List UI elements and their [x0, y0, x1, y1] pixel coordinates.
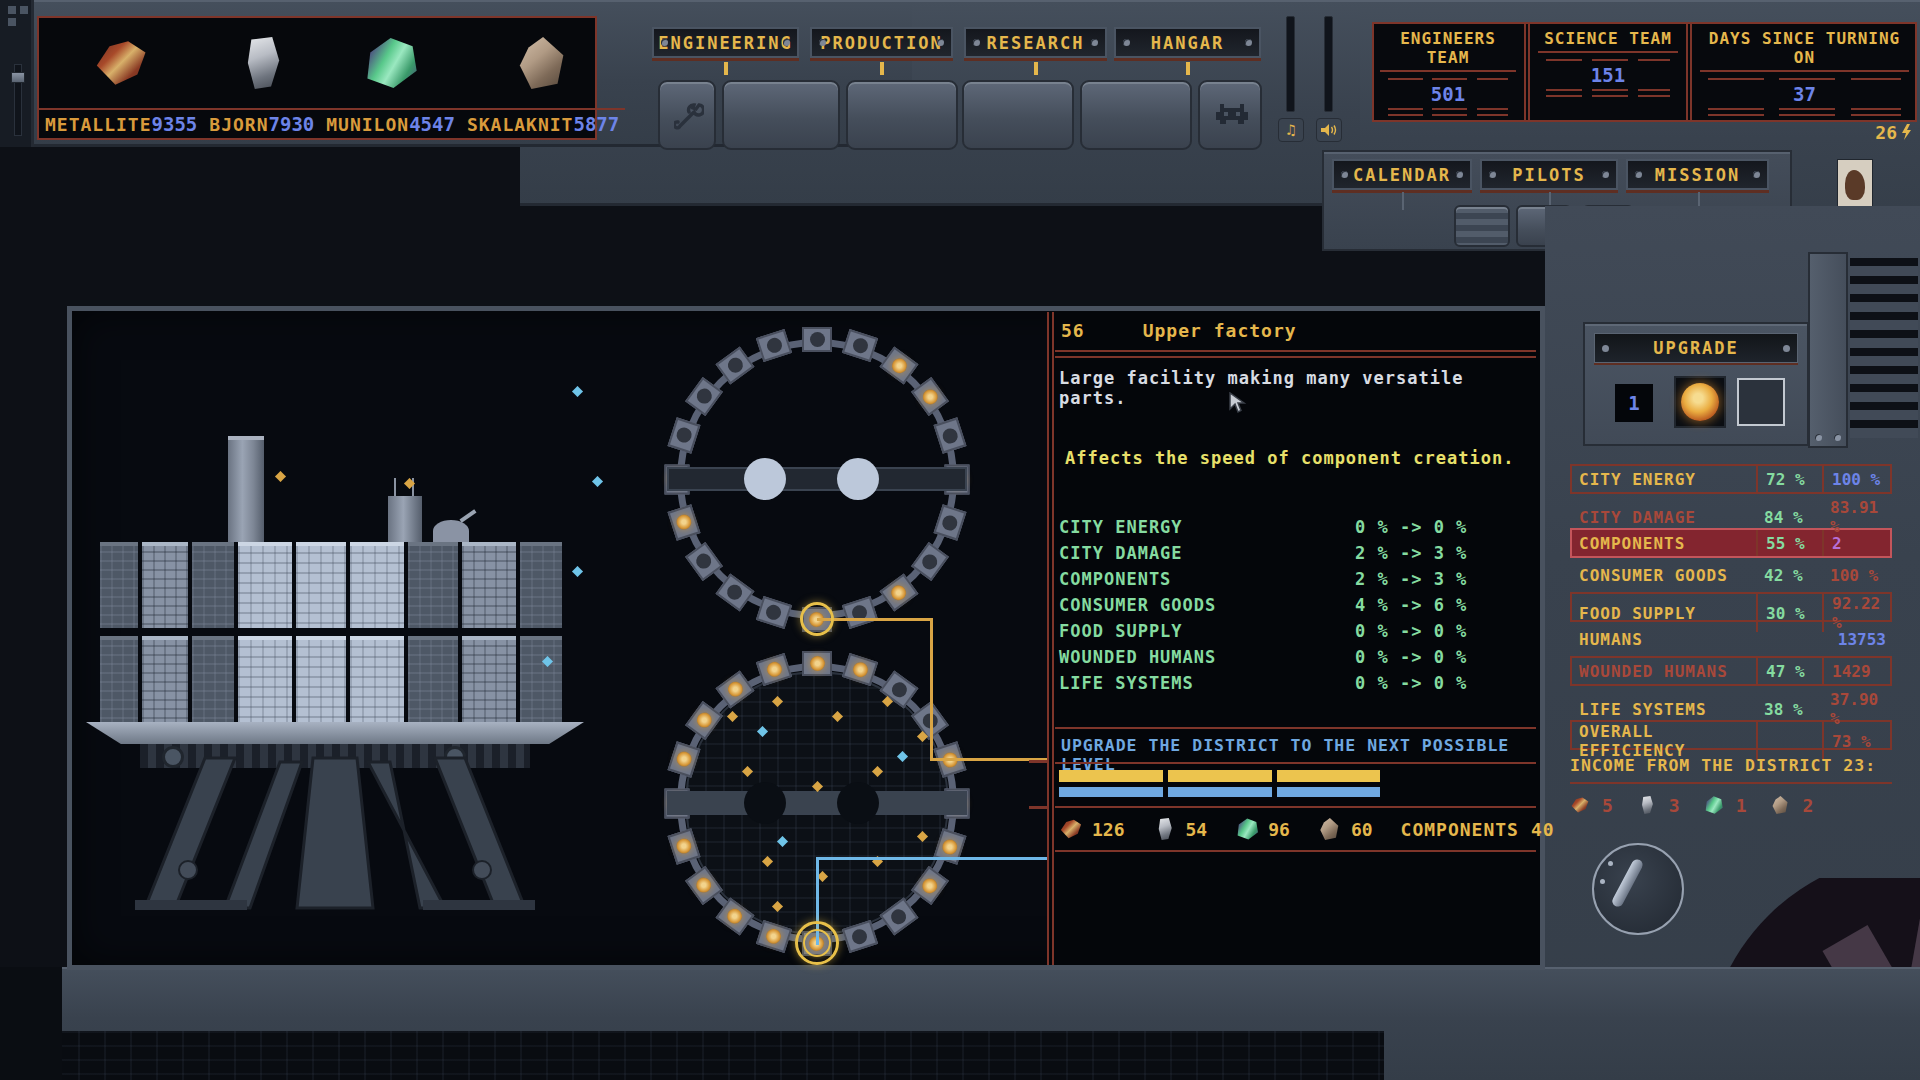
tab-engineering[interactable]: ENGINEERING	[652, 27, 799, 58]
game-screen: METALLITE9355BJORN7930MUNILON4547SKALAKN…	[0, 0, 1920, 1080]
building-block	[408, 542, 458, 628]
building-block	[520, 636, 562, 722]
decor-block	[8, 18, 16, 26]
wrench-icon	[674, 100, 704, 130]
menu-tab-label: CALENDAR	[1353, 165, 1451, 185]
components-cost: COMPONENTS40	[1401, 819, 1577, 840]
science-team-value: 151	[1532, 63, 1684, 87]
stat-change: 0 % -> 0 %	[1355, 621, 1467, 641]
building-row	[100, 542, 570, 628]
stat-change: 0 % -> 0 %	[1355, 647, 1467, 667]
district-header: 56 Upper factory	[1061, 320, 1297, 341]
tab-label: PRODUCTION	[820, 33, 942, 53]
antenna	[394, 478, 396, 496]
stat-change: 0 % -> 0 %	[1355, 517, 1467, 537]
row-value: 92.22 %	[1822, 594, 1890, 632]
resource-cell: SKALAKNIT5877	[461, 18, 625, 138]
metallite-ore-icon	[1570, 796, 1590, 814]
axle-hub	[744, 782, 786, 824]
district-stat-row: COMPONENTS2 % -> 3 %	[1059, 569, 1519, 595]
stat-label: FOOD SUPPLY	[1059, 621, 1183, 641]
divider	[1055, 806, 1536, 808]
level-bar-slot	[1385, 770, 1489, 800]
invader-button[interactable]	[1198, 80, 1262, 150]
district-effect: Affects the speed of component creation.	[1065, 448, 1514, 468]
mouse-cursor	[1228, 392, 1248, 414]
district-id: 56	[1061, 320, 1085, 341]
building-block	[192, 542, 234, 628]
upgrade-core-button[interactable]	[1674, 376, 1726, 428]
wrench-button[interactable]	[658, 80, 716, 150]
row-value: 100 %	[1822, 466, 1890, 492]
munilon-crystal-icon	[1235, 818, 1259, 840]
music-volume-slider[interactable]	[1286, 16, 1295, 112]
connector-line-yellow	[817, 618, 933, 621]
decor-dashes	[1546, 95, 1670, 97]
platform-deck	[86, 722, 584, 744]
row-label: WOUNDED HUMANS	[1572, 662, 1756, 681]
vent-slats	[1850, 258, 1918, 438]
science-team-label: SCIENCE TEAM	[1532, 29, 1684, 48]
district-description: Large facility making many versatile par…	[1059, 368, 1540, 408]
menu-tab-label: PILOTS	[1512, 165, 1585, 185]
row-percent: 55 %	[1756, 530, 1822, 556]
decor-dashes	[1708, 78, 1901, 80]
district-stat-row: CITY DAMAGE2 % -> 3 %	[1059, 543, 1519, 569]
resource-name: METALLITE	[45, 114, 152, 135]
platform-legs	[130, 752, 540, 912]
cost-value: 126	[1092, 819, 1125, 840]
sparkle	[592, 476, 603, 487]
menu-key-1[interactable]	[1454, 205, 1510, 247]
building-block	[238, 636, 292, 722]
table-row[interactable]: FOOD SUPPLY30 %92.22 %	[1570, 592, 1892, 622]
building-block	[462, 542, 516, 628]
resources-panel: METALLITE9355BJORN7930MUNILON4547SKALAKN…	[37, 16, 597, 140]
metallite-ore-icon	[92, 37, 150, 89]
building-block	[100, 636, 138, 722]
building-block	[192, 636, 234, 722]
upgrade-prompt: UPGRADE THE DISTRICT TO THE NEXT POSSIBL…	[1061, 736, 1540, 774]
decor-dashes	[1388, 108, 1508, 110]
stat-change: 2 % -> 3 %	[1355, 569, 1467, 589]
city-platform-art	[100, 430, 570, 910]
decor-dashes	[1388, 78, 1508, 80]
income-title: INCOME FROM THE DISTRICT 23:	[1570, 756, 1900, 775]
tab-indicator	[724, 62, 728, 75]
tab-indicator	[880, 62, 884, 75]
resource-value: 9355	[152, 113, 198, 135]
screw	[783, 39, 790, 46]
divider	[1684, 24, 1694, 120]
menu-tab-label: MISSION	[1655, 165, 1741, 185]
level-bar-slot	[1168, 770, 1272, 800]
decor-block	[8, 6, 16, 14]
decor-block	[20, 6, 28, 14]
divider	[1055, 727, 1536, 729]
income-item: 5	[1570, 795, 1613, 816]
building-block	[462, 636, 516, 722]
screw	[1091, 39, 1098, 46]
stat-label: LIFE SYSTEMS	[1059, 673, 1194, 693]
screw	[1123, 39, 1130, 46]
upgrade-level-bars	[1059, 770, 1489, 800]
building-block	[142, 636, 188, 722]
district-title: Upper factory	[1143, 320, 1297, 341]
sparkle	[572, 566, 583, 577]
table-row[interactable]: OVERALL EFFICIENCY73 %	[1570, 720, 1892, 750]
cost-value: 96	[1268, 819, 1290, 840]
income-value: 1	[1736, 795, 1747, 816]
screw	[1245, 39, 1252, 46]
music-note-icon: ♫	[1278, 118, 1304, 142]
district-stat-row: CONSUMER GOODS4 % -> 6 %	[1059, 595, 1519, 621]
power-readout: 26	[1800, 121, 1912, 143]
stat-label: CITY DAMAGE	[1059, 543, 1183, 563]
building-block	[350, 542, 404, 628]
divider	[1055, 350, 1536, 358]
axle-hub	[837, 458, 879, 500]
district-node[interactable]	[802, 651, 832, 676]
stat-label: COMPONENTS	[1059, 569, 1171, 589]
screw	[1341, 171, 1348, 178]
resource-value: 4547	[409, 113, 455, 135]
level-bar-slot	[1059, 770, 1163, 800]
invader-icon	[1216, 104, 1248, 128]
row-label: HUMANS	[1572, 630, 1756, 649]
table-row[interactable]: WOUNDED HUMANS47 %1429	[1570, 656, 1892, 686]
building-block	[350, 636, 404, 722]
tab-indicator	[1186, 62, 1190, 75]
city-viewport[interactable]: 56 Upper factory Large facility making m…	[67, 306, 1545, 970]
screw	[1783, 345, 1790, 352]
stat-label: CONSUMER GOODS	[1059, 595, 1216, 615]
divider	[1570, 782, 1892, 784]
screw	[1608, 861, 1613, 866]
team-stats-panel: ENGINEERS TEAM 501 SCIENCE TEAM 151 DAYS…	[1372, 22, 1917, 122]
skalaknit-crystal-icon	[514, 37, 572, 89]
antenna	[412, 478, 414, 496]
decor-dashes	[1708, 108, 1901, 110]
screw	[661, 39, 668, 46]
speaker-icon	[1316, 118, 1342, 142]
bjorn-crystal-icon	[1153, 818, 1177, 840]
cost-item: 60	[1318, 818, 1373, 840]
resource-cell: METALLITE9355	[39, 18, 203, 138]
resource-value: 5877	[573, 113, 619, 135]
screw	[1456, 171, 1463, 178]
row-percent: 47 %	[1756, 658, 1822, 684]
menu-tab-calendar[interactable]: CALENDAR	[1332, 159, 1472, 190]
row-label: FOOD SUPPLY	[1572, 604, 1756, 623]
resource-name: BJORN	[209, 114, 268, 135]
engineers-team-block: ENGINEERS TEAM 501	[1374, 24, 1522, 120]
screw	[1602, 345, 1609, 352]
row-percent: 42 %	[1756, 566, 1822, 585]
building-block	[520, 542, 562, 628]
toolbar-key-4[interactable]	[1080, 80, 1192, 150]
divider	[1380, 70, 1516, 72]
screw	[937, 39, 944, 46]
left-slider-handle[interactable]	[11, 72, 25, 83]
row-label: CONSUMER GOODS	[1572, 566, 1756, 585]
row-percent: 30 %	[1756, 594, 1822, 632]
tab-production[interactable]: PRODUCTION	[810, 27, 953, 58]
screw	[1600, 879, 1605, 884]
days-counter-value: 37	[1694, 82, 1915, 106]
row-percent: 38 %	[1756, 700, 1822, 719]
stat-change: 0 % -> 0 %	[1355, 673, 1467, 693]
resource-value: 7930	[269, 113, 315, 135]
tab-hangar[interactable]: HANGAR	[1114, 27, 1261, 58]
science-team-block: SCIENCE TEAM 151	[1532, 24, 1684, 120]
resource-name: SKALAKNIT	[467, 114, 574, 135]
metallite-ore-icon	[1059, 818, 1083, 840]
sound-volume-slider[interactable]	[1324, 16, 1333, 112]
panel-tick	[1029, 806, 1047, 809]
row-percent: 84 %	[1756, 508, 1822, 527]
building-block	[296, 636, 346, 722]
tab-research[interactable]: RESEARCH	[964, 27, 1107, 58]
income-value: 5	[1602, 795, 1613, 816]
bjorn-crystal-icon	[233, 37, 291, 89]
level-bar-slot	[1277, 770, 1381, 800]
menu-tab-pilots[interactable]: PILOTS	[1480, 159, 1618, 190]
row-value: 13753	[1756, 630, 1890, 649]
decor-dashes	[1546, 89, 1670, 91]
poster-figure	[1838, 160, 1872, 212]
divider	[1538, 51, 1678, 53]
income-value: 3	[1669, 795, 1680, 816]
building-block	[408, 636, 458, 722]
resource-cell: MUNILON4547	[320, 18, 461, 138]
building-block	[238, 542, 292, 628]
row-label: OVERALL EFFICIENCY	[1572, 722, 1756, 760]
row-value: 1429	[1822, 658, 1890, 684]
divider	[1055, 850, 1536, 852]
stat-change: 4 % -> 6 %	[1355, 595, 1467, 615]
tab-label: HANGAR	[1151, 33, 1224, 53]
divider	[1522, 24, 1532, 120]
connector-line-yellow	[930, 618, 933, 761]
screw	[1602, 171, 1609, 178]
cost-value: 54	[1186, 819, 1208, 840]
toolbar-key-3[interactable]	[962, 80, 1074, 150]
resource-name: MUNILON	[326, 114, 409, 135]
power-icon	[1901, 124, 1912, 140]
city-stats-table: CITY ENERGY72 %100 %CITY DAMAGE84 %83.91…	[1570, 464, 1892, 752]
district-node[interactable]	[802, 327, 832, 352]
stat-label: WOUNDED HUMANS	[1059, 647, 1216, 667]
sparkle	[572, 386, 583, 397]
tab-indicator	[1034, 62, 1038, 75]
resource-cell: BJORN7930	[203, 18, 320, 138]
screw	[1815, 434, 1822, 441]
table-row[interactable]: CONSUMER GOODS42 %100 %	[1570, 560, 1892, 590]
row-label: CITY DAMAGE	[1572, 508, 1756, 527]
tab-label: RESEARCH	[987, 33, 1085, 53]
row-value: 2	[1822, 530, 1890, 556]
building-block	[142, 542, 188, 628]
ring-axle	[667, 467, 967, 491]
upgrade-button-label: UPGRADE	[1653, 338, 1739, 358]
district-info-panel: 56 Upper factory Large facility making m…	[1047, 312, 1540, 965]
building-block	[100, 542, 138, 628]
decor-dashes	[1708, 114, 1901, 116]
tab-label: ENGINEERING	[658, 33, 793, 53]
screw	[1753, 171, 1760, 178]
days-counter-label: DAYS SINCE TURNING ON	[1694, 29, 1915, 67]
district-stat-row: WOUNDED HUMANS0 % -> 0 %	[1059, 647, 1519, 673]
toolbar-key-1[interactable]	[722, 80, 840, 150]
screw	[1834, 434, 1841, 441]
axle-hub	[837, 782, 879, 824]
cost-item: 54	[1153, 818, 1208, 840]
chimney-tower	[228, 436, 264, 542]
upgrade-cost-row: 126549660COMPONENTS40	[1059, 812, 1529, 846]
axle-hub	[744, 458, 786, 500]
decor-dashes	[1388, 114, 1508, 116]
screw	[819, 39, 826, 46]
engineers-team-label: ENGINEERS TEAM	[1374, 29, 1522, 67]
toolbar-key-2[interactable]	[846, 80, 958, 150]
power-value: 26	[1875, 122, 1897, 143]
cost-value: 60	[1351, 819, 1373, 840]
divider	[1055, 762, 1536, 764]
row-value: 73 %	[1822, 722, 1890, 760]
table-row[interactable]: CITY ENERGY72 %100 %	[1570, 464, 1892, 494]
cost-item: 96	[1235, 818, 1290, 840]
ring-axle	[667, 791, 967, 815]
upgrade-panel: UPGRADE 1	[1583, 322, 1809, 446]
connector-line-blue	[816, 857, 1047, 860]
income-item: 1	[1704, 795, 1747, 816]
radar-dome	[433, 520, 469, 542]
munilon-crystal-icon	[362, 37, 420, 89]
days-counter-block: DAYS SINCE TURNING ON 37	[1694, 24, 1915, 120]
income-item: 3	[1637, 795, 1680, 816]
district-stat-row: LIFE SYSTEMS0 % -> 0 %	[1059, 673, 1519, 699]
machinery-texture	[0, 967, 62, 1080]
stat-change: 2 % -> 3 %	[1355, 543, 1467, 563]
table-row[interactable]: LIFE SYSTEMS38 %37.90 %	[1570, 688, 1892, 718]
row-label: COMPONENTS	[1572, 534, 1756, 553]
cost-item: 126	[1059, 818, 1125, 840]
connector	[1402, 192, 1404, 210]
core-glow-icon	[1681, 383, 1719, 421]
antenna-tower	[388, 496, 422, 542]
table-row[interactable]: CITY DAMAGE84 %83.91 %	[1570, 496, 1892, 526]
vent-strip	[1808, 252, 1848, 448]
building-block	[296, 542, 346, 628]
empty-slot[interactable]	[1737, 378, 1785, 426]
row-percent	[1756, 722, 1822, 760]
upgrade-button[interactable]: UPGRADE	[1594, 333, 1798, 363]
table-row[interactable]: COMPONENTS55 %2	[1570, 528, 1892, 558]
screw	[1635, 171, 1642, 178]
income-item: 2	[1771, 795, 1814, 816]
bjorn-crystal-icon	[1637, 796, 1657, 814]
selected-node-ring-inner	[803, 929, 831, 957]
skalaknit-crystal-icon	[1318, 818, 1342, 840]
district-stat-row: CITY ENERGY0 % -> 0 %	[1059, 517, 1519, 543]
income-value: 2	[1803, 795, 1814, 816]
screw	[1489, 171, 1496, 178]
row-label: CITY ENERGY	[1572, 470, 1756, 489]
selected-node-ring[interactable]	[800, 602, 834, 636]
stat-label: CITY ENERGY	[1059, 517, 1183, 537]
row-percent: 72 %	[1756, 466, 1822, 492]
machinery-texture	[0, 1031, 1384, 1080]
divider	[1700, 70, 1909, 72]
munilon-crystal-icon	[1704, 796, 1724, 814]
skalaknit-crystal-icon	[1771, 796, 1791, 814]
control-knob[interactable]	[1592, 843, 1684, 935]
row-label: LIFE SYSTEMS	[1572, 700, 1756, 719]
upgrade-level-value: 1	[1615, 384, 1653, 422]
panel-tick	[1029, 760, 1047, 763]
row-value: 100 %	[1822, 566, 1890, 585]
income-row: 5312	[1570, 790, 1892, 820]
knob-lever	[1610, 857, 1644, 908]
panel-border	[1047, 312, 1054, 965]
district-stat-row: FOOD SUPPLY0 % -> 0 %	[1059, 621, 1519, 647]
decor-dashes	[1546, 59, 1670, 61]
building-row	[100, 636, 570, 722]
engineers-team-value: 501	[1374, 82, 1522, 106]
menu-tab-mission[interactable]: MISSION	[1626, 159, 1769, 190]
screw	[973, 39, 980, 46]
